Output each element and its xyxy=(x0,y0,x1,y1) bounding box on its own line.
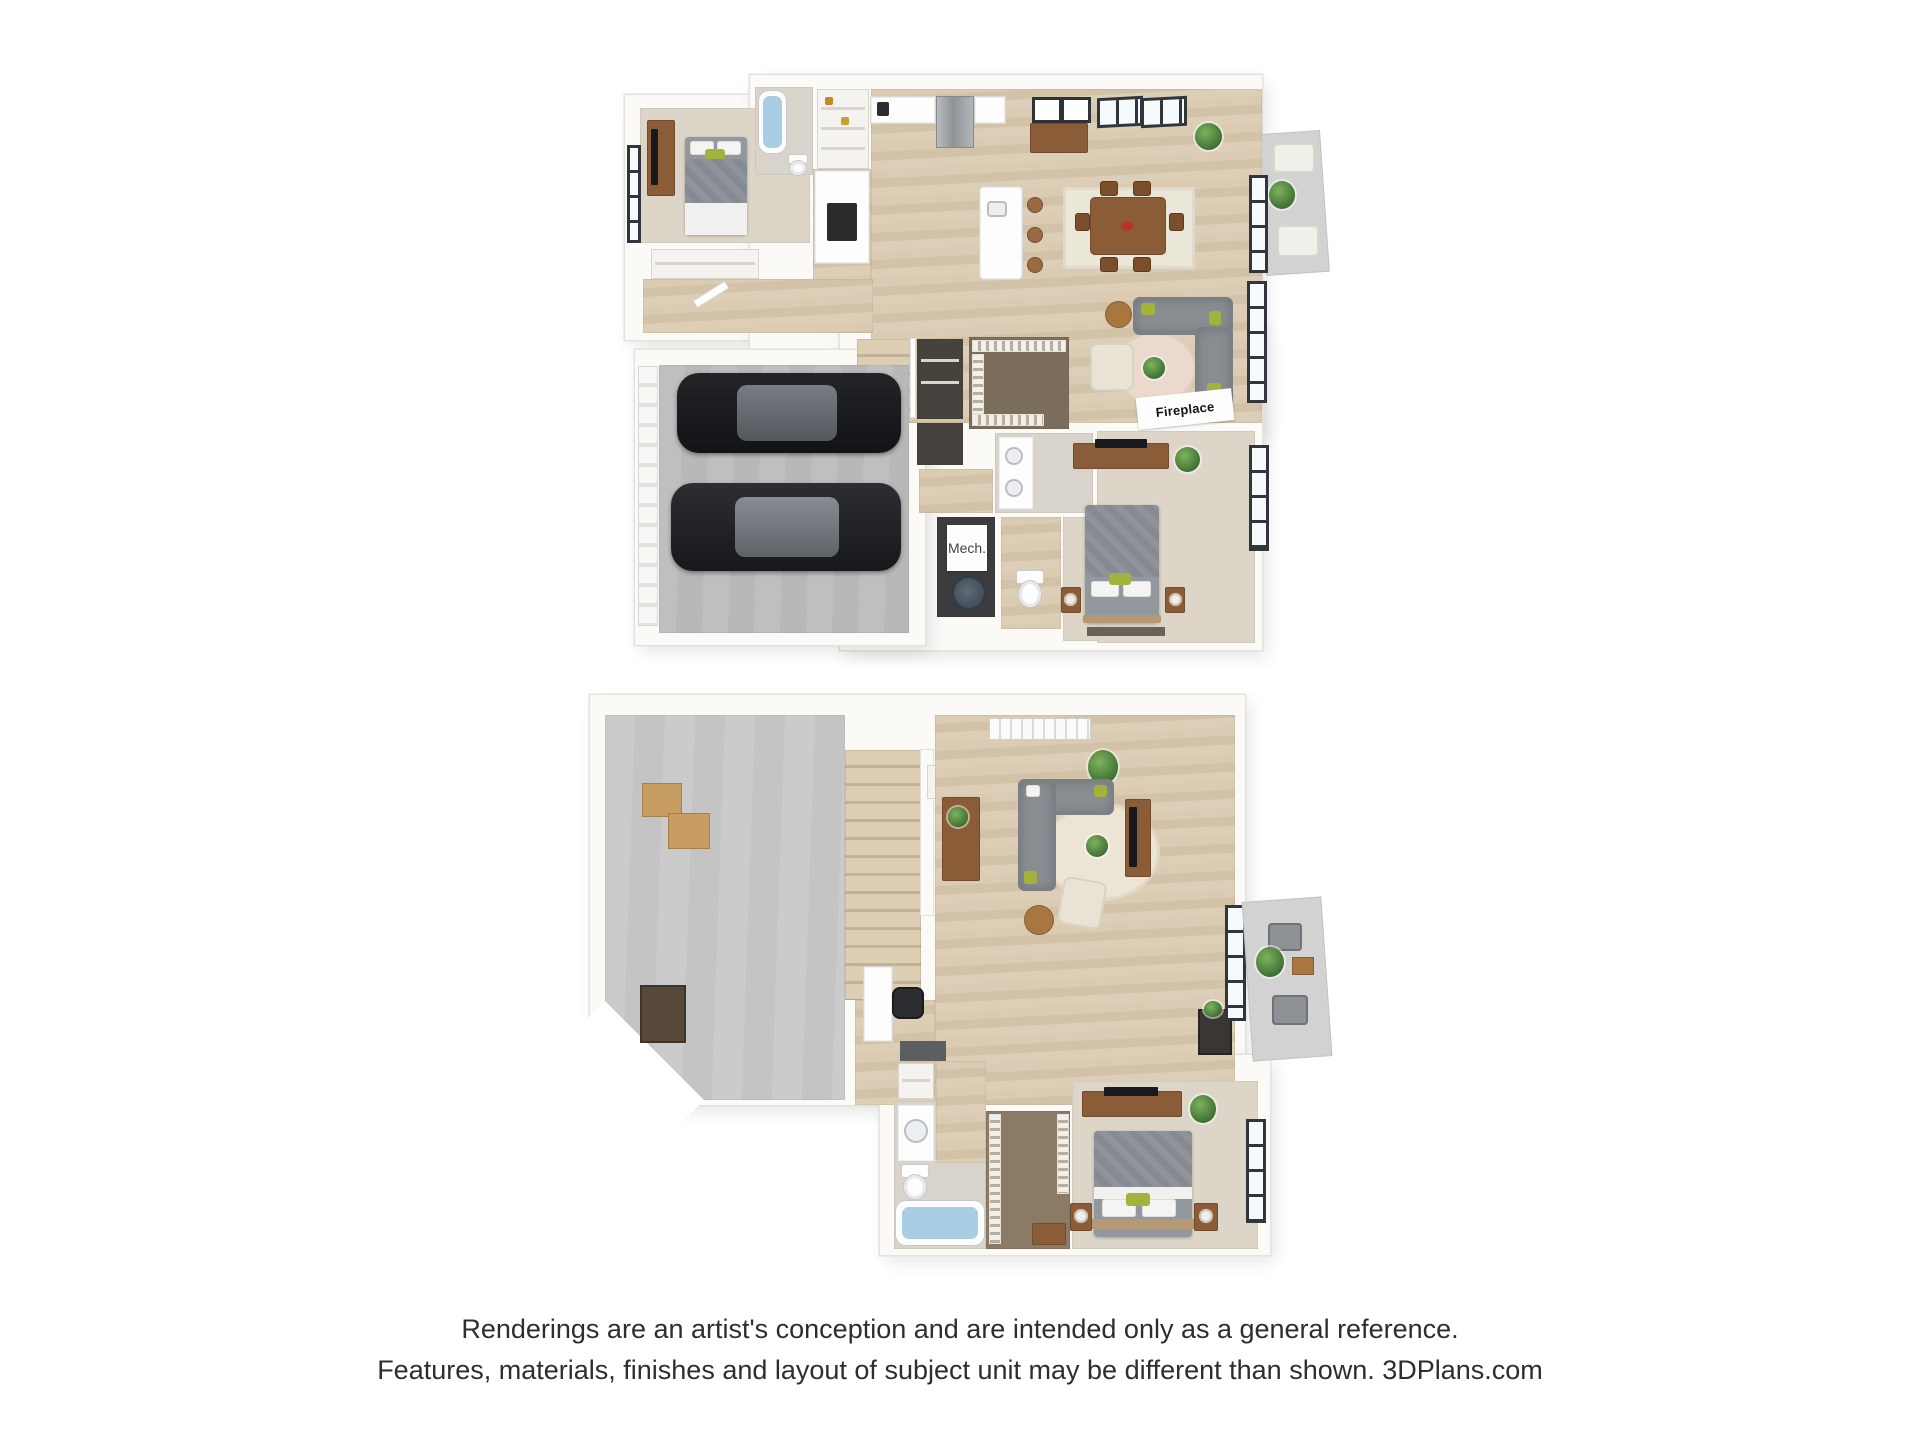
closet-dresser xyxy=(1032,1223,1066,1245)
vessel-sink xyxy=(904,1119,928,1143)
bed-duvet xyxy=(685,159,747,203)
desk xyxy=(864,967,892,1041)
closet-rack xyxy=(1058,1115,1068,1193)
wall-art xyxy=(1061,97,1091,123)
coffee-maker xyxy=(877,102,889,116)
dining-chair xyxy=(1133,257,1151,272)
closet-rack xyxy=(973,415,1043,425)
floorplan-rendering-page: Fireplace Mech. xyxy=(0,0,1920,1440)
bar-stool xyxy=(1027,227,1043,243)
sofa-pillow xyxy=(1024,871,1037,884)
nightstand-lamp xyxy=(1199,1209,1213,1223)
dining-chair xyxy=(1075,213,1090,231)
lower-bedroom-window xyxy=(1246,1119,1266,1223)
car xyxy=(671,483,901,571)
patio-plant xyxy=(1269,181,1295,209)
utility-shelf xyxy=(921,359,959,362)
mech-placard: Mech. xyxy=(947,525,987,571)
stairs-up xyxy=(845,750,921,1000)
disclaimer-line-2: Features, materials, finishes and layout… xyxy=(0,1353,1920,1387)
cardboard-box xyxy=(642,783,682,817)
pantry-shelf-line xyxy=(821,147,865,150)
master-tv xyxy=(1095,439,1147,448)
stair-railing xyxy=(911,339,915,417)
patio-plant xyxy=(1256,947,1284,977)
closet-rack xyxy=(990,1115,1000,1243)
bedroom-plant xyxy=(1190,1095,1216,1123)
closet-rod xyxy=(655,262,755,265)
car-glass xyxy=(735,497,839,557)
car xyxy=(677,373,901,453)
garage-door xyxy=(639,367,657,625)
dining-chair xyxy=(1169,213,1184,231)
water-heater xyxy=(951,575,987,611)
vanity-sink xyxy=(1005,447,1023,465)
bedroom-plant xyxy=(1175,447,1200,472)
bedroom2-window xyxy=(627,145,641,243)
toilet-bowl xyxy=(904,1175,926,1199)
disclaimer-line-1: Renderings are an artist's conception an… xyxy=(0,1312,1920,1346)
sofa-pillow xyxy=(1026,785,1040,797)
patio-armchair xyxy=(1273,143,1315,173)
rug-plant xyxy=(1143,357,1165,379)
lower-patio-slab xyxy=(1243,897,1332,1060)
sofa-pillow xyxy=(1209,311,1221,325)
bedroom-tv xyxy=(1104,1087,1158,1096)
bed-duvet xyxy=(1094,1131,1192,1187)
armchair xyxy=(1090,343,1134,391)
armchair xyxy=(1056,876,1108,931)
bed-duvet xyxy=(1085,505,1159,577)
closet-rack xyxy=(973,355,983,413)
patio-window xyxy=(1225,905,1246,1021)
kitchen-window xyxy=(1141,96,1187,128)
nightstand-lamp xyxy=(1074,1209,1088,1223)
corner-plant xyxy=(1195,123,1222,150)
patio-chair xyxy=(1272,995,1308,1025)
utility-shelf xyxy=(921,381,959,384)
refrigerator xyxy=(937,97,973,147)
nightstand-lamp xyxy=(1064,593,1077,606)
patio-side-table xyxy=(1292,957,1314,975)
table-centerpiece xyxy=(1121,221,1133,231)
bed-headboard xyxy=(1083,615,1161,623)
bedroom-runner-rug xyxy=(1087,627,1165,636)
nightstand-lamp xyxy=(1169,593,1182,606)
pantry-jar xyxy=(841,117,849,125)
closet-rack xyxy=(973,341,1065,351)
toilet-bowl xyxy=(1019,581,1041,607)
wall-heater-vent xyxy=(990,719,1090,739)
living-window xyxy=(1247,281,1267,403)
pantry-jar xyxy=(825,97,833,105)
master-window xyxy=(1249,445,1269,551)
dining-chair xyxy=(1100,181,1118,196)
rug-plant xyxy=(1086,835,1108,857)
kitchen-window xyxy=(1097,96,1143,128)
pantry-shelf-line xyxy=(821,127,865,130)
office-chair xyxy=(892,987,924,1019)
pantry-shelf-line xyxy=(821,107,865,110)
bedroom2-tv xyxy=(651,129,658,185)
side-table xyxy=(1024,905,1054,935)
cardboard-box xyxy=(668,813,710,849)
storage-crate xyxy=(640,985,686,1043)
sofa-pillow xyxy=(1094,785,1107,797)
vanity-sink xyxy=(1005,479,1023,497)
floor-mat xyxy=(900,1041,946,1061)
tv xyxy=(1129,807,1137,867)
wall-art xyxy=(1032,97,1062,123)
laundry-closet xyxy=(917,423,963,465)
console-flowers xyxy=(948,807,968,827)
bed-sheet xyxy=(685,203,747,235)
cooktop xyxy=(827,203,857,241)
bookshelf-plant xyxy=(1204,1001,1222,1017)
tub-water xyxy=(902,1207,978,1239)
dining-chair xyxy=(1133,181,1151,196)
entry-hall-floor xyxy=(643,279,873,333)
hall-floor xyxy=(919,469,993,513)
car-glass xyxy=(737,385,837,441)
island-sink xyxy=(987,201,1007,217)
linen-shelf-line xyxy=(902,1079,930,1082)
utility-closet xyxy=(917,339,963,419)
tub-water xyxy=(763,96,782,148)
mech-label: Mech. xyxy=(947,525,987,571)
sideboard xyxy=(1030,123,1088,153)
living-window xyxy=(1249,175,1268,273)
first-floor-plan: Fireplace Mech. xyxy=(585,75,1325,650)
sofa-pillow xyxy=(1141,303,1155,315)
lower-floor-plan xyxy=(580,695,1330,1260)
bed-headboard xyxy=(1090,1219,1196,1229)
bar-stool xyxy=(1027,197,1043,213)
bed-accent-pillow xyxy=(1126,1193,1150,1206)
disclaimer: Renderings are an artist's conception an… xyxy=(0,1312,1920,1394)
toilet-bowl xyxy=(790,161,806,175)
patio-armchair xyxy=(1277,225,1319,257)
side-table xyxy=(1105,301,1132,328)
bar-stool xyxy=(1027,257,1043,273)
bed-accent-pillow xyxy=(1109,573,1131,585)
lower-hall-floor xyxy=(936,1061,986,1163)
dining-chair xyxy=(1100,257,1118,272)
kitchen-counter xyxy=(975,97,1005,123)
